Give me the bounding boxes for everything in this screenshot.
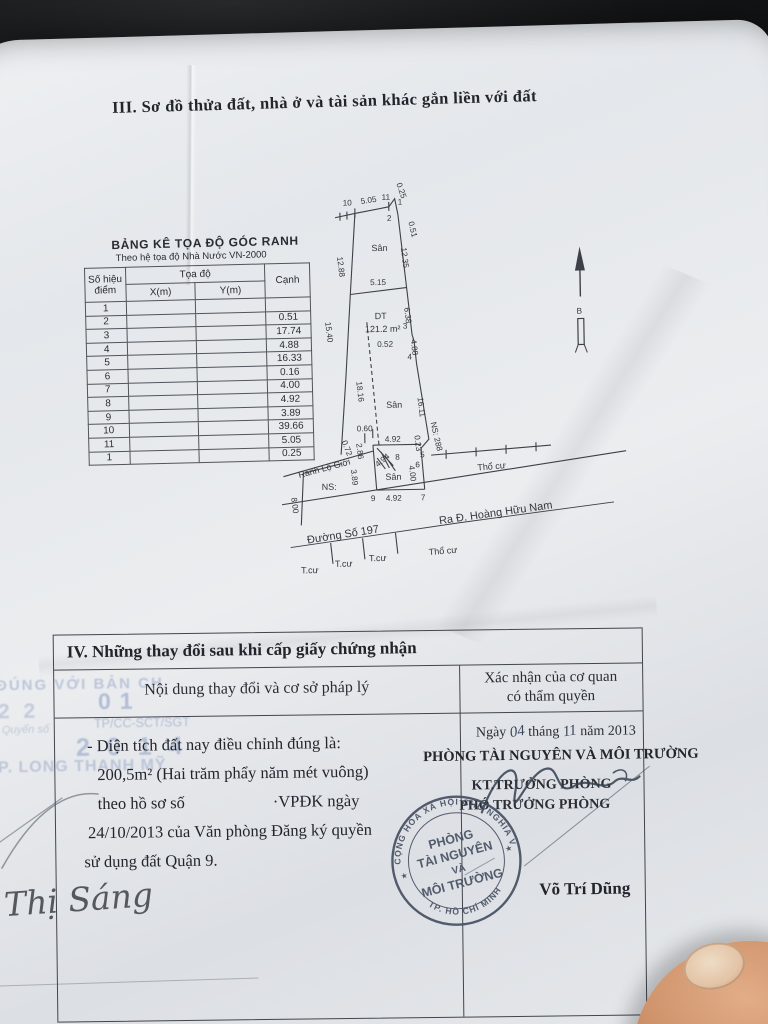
date-word: năm 2013 bbox=[580, 724, 636, 740]
dim-label: 16.11 bbox=[416, 397, 427, 418]
parcel-outline bbox=[277, 195, 628, 565]
signer-name: Võ Trí Dũng bbox=[505, 878, 665, 900]
point-label: 10 bbox=[343, 198, 353, 207]
cell-point: 1 bbox=[85, 301, 126, 316]
dim-label: 15.40 bbox=[323, 321, 334, 343]
parcel-diagram: B 10 5.05 11 0.25 1 2 0.51 12.88 Sân 12.… bbox=[276, 166, 714, 613]
cell-point: 7 bbox=[87, 383, 128, 398]
cell-point: 5 bbox=[87, 356, 128, 371]
boundary-label: Ranh Lộ Giới bbox=[297, 457, 351, 480]
point-label: 2 bbox=[387, 214, 392, 223]
date-word: Ngày bbox=[476, 725, 507, 740]
street-label: Ra Đ. Hoàng Hữu Nam bbox=[438, 499, 553, 527]
cell-point: 3 bbox=[86, 329, 127, 344]
point-label: 1 bbox=[398, 198, 403, 207]
cell-point: 11 bbox=[89, 437, 130, 452]
dim-label: 12.88 bbox=[335, 256, 346, 278]
point-label: 7 bbox=[421, 493, 426, 502]
zone-label: Sân bbox=[371, 243, 387, 253]
col-header-point: Số hiệu điểm bbox=[84, 267, 125, 302]
col-header-y: Y(m) bbox=[195, 281, 265, 300]
point-label: 11 bbox=[382, 193, 391, 202]
section4-table: IV. Những thay đổi sau khi cấp giấy chứn… bbox=[53, 627, 648, 1022]
point-label: 3 bbox=[403, 322, 408, 331]
cell-y bbox=[199, 447, 269, 462]
zone-label: NS: bbox=[322, 482, 337, 492]
zone-label: DT bbox=[375, 311, 388, 321]
point-label: 4 bbox=[407, 352, 412, 361]
dim-label: 8.00 bbox=[289, 497, 300, 514]
cell-point: 8 bbox=[88, 396, 129, 411]
dim-label: 0.52 bbox=[377, 340, 394, 349]
point-label: 8 bbox=[395, 453, 400, 462]
point-label: 5 bbox=[420, 450, 425, 459]
dim-label: 4.92 bbox=[386, 494, 403, 503]
amendment-line: 200,5m² (Hai trăm phẩy năm mét vuông) bbox=[97, 756, 453, 789]
stamp-star-icon: ★ bbox=[400, 871, 409, 882]
point-label: 9 bbox=[371, 494, 376, 503]
street-label: Đường Số 197 bbox=[306, 523, 380, 546]
col-header-x: X(m) bbox=[125, 283, 195, 302]
amendment-line-part: theo hồ sơ số bbox=[98, 793, 185, 813]
faded-stamp-text: 2 2 bbox=[0, 700, 39, 725]
north-label: B bbox=[577, 306, 583, 315]
cell-point: 1 bbox=[89, 451, 130, 466]
zone-label: T.cư bbox=[301, 565, 319, 575]
photo-of-document: III. Sơ đồ thửa đất, nhà ở và tài sản kh… bbox=[0, 0, 768, 1024]
dim-label: 0.51 bbox=[406, 221, 418, 239]
date-month-handwritten: 11 bbox=[562, 722, 579, 741]
cell-x bbox=[130, 449, 200, 464]
cell-point: 10 bbox=[88, 424, 129, 439]
col-header-content: Nội dung thay đổi và cơ sở pháp lý bbox=[54, 678, 459, 701]
zone-label: Sân bbox=[385, 472, 401, 482]
cell-point: 4 bbox=[86, 342, 127, 357]
col-header-confirm-line1: Xác nhận của cơ quan bbox=[459, 667, 642, 688]
cell-point: 9 bbox=[88, 410, 129, 425]
section3-title: III. Sơ đồ thửa đất, nhà ở và tài sản kh… bbox=[112, 86, 537, 118]
date-day-handwritten: 04 bbox=[508, 723, 526, 742]
area-label: 121.2 m² bbox=[365, 324, 401, 335]
amendment-line: - Diện tích đất nay điều chỉnh đúng là: bbox=[87, 727, 453, 760]
zone-label: Thổ cư bbox=[428, 545, 457, 557]
office-name: PHÒNG TÀI NGUYÊN VÀ MÔI TRƯỜNG bbox=[423, 746, 679, 766]
section4-header-row: Nội dung thay đổi và cơ sở pháp lý Xác n… bbox=[54, 663, 643, 718]
dim-label: 0.60 bbox=[357, 424, 374, 433]
point-label: 6 bbox=[415, 460, 420, 469]
zone-label: T.cư bbox=[335, 559, 353, 569]
zone-label: T.cư bbox=[369, 553, 387, 563]
date-word: tháng bbox=[528, 724, 559, 739]
official-stamp: CỘNG HÒA XÃ HỘI CHỦ NGHĨA VIỆT NAM TP. H… bbox=[386, 790, 528, 932]
dim-label: 12.35 bbox=[399, 247, 410, 269]
cell-point: 6 bbox=[87, 369, 128, 384]
zone-label: Sân bbox=[386, 400, 402, 410]
faded-stamp-text: Quyển số bbox=[2, 724, 49, 737]
cell-point: 2 bbox=[86, 315, 127, 330]
zone-label: NS: 288 bbox=[429, 421, 445, 452]
dim-label: 18.16 bbox=[354, 381, 365, 403]
dim-label: 4.92 bbox=[385, 435, 402, 444]
document-content: III. Sơ đồ thửa đất, nhà ở và tài sản kh… bbox=[0, 0, 768, 1024]
north-arrow-icon: B bbox=[574, 246, 588, 352]
confirmation-date: Ngày 04 tháng 11 năm 2013 bbox=[463, 722, 649, 741]
dim-label: 5.15 bbox=[370, 278, 387, 287]
col-header-confirm-line2: có thẩm quyền bbox=[459, 686, 642, 707]
dim-label: 5.05 bbox=[360, 195, 378, 206]
col-header-confirm: Xác nhận của cơ quan có thẩm quyền bbox=[459, 667, 642, 707]
amendment-line-part: ·VPĐK ngày bbox=[273, 791, 360, 811]
dim-label: 2.86 bbox=[354, 443, 365, 460]
dim-label: 3.89 bbox=[349, 469, 360, 486]
